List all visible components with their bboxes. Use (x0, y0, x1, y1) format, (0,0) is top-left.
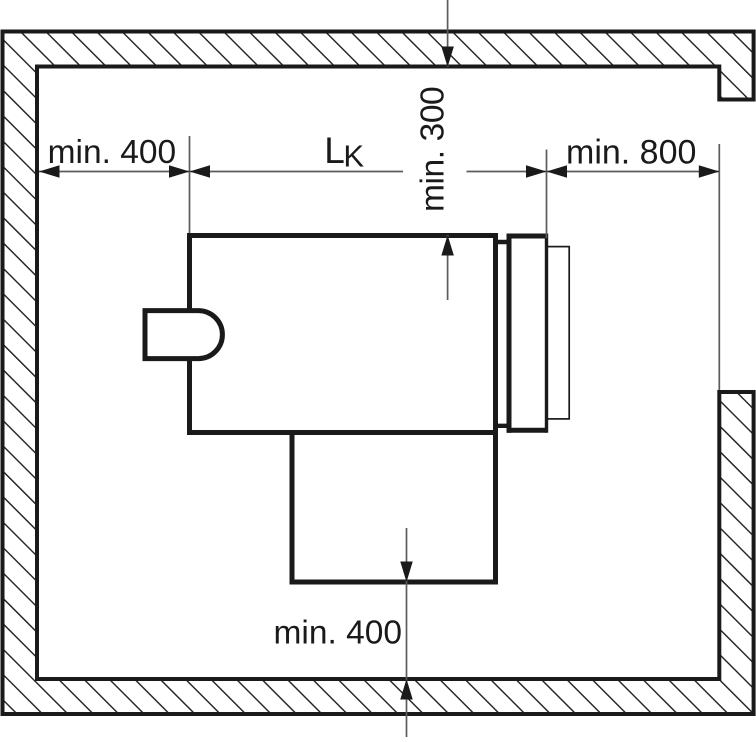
svg-text:min. 800: min. 800 (566, 134, 696, 172)
svg-text:min. 400: min. 400 (274, 614, 403, 651)
svg-text:min. 400: min. 400 (48, 134, 177, 171)
svg-text:L: L (324, 130, 345, 171)
svg-text:min. 300: min. 300 (414, 87, 451, 212)
svg-text:K: K (343, 139, 364, 174)
